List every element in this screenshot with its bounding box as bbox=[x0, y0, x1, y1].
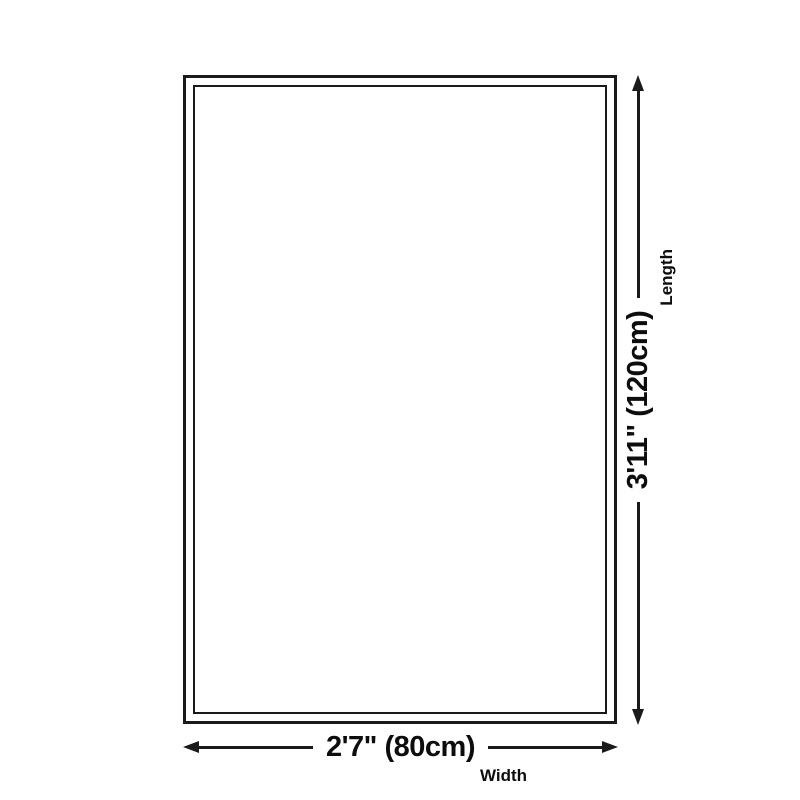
arrow-right-icon bbox=[602, 741, 618, 753]
arrow-left-icon bbox=[183, 741, 199, 753]
dimension-line bbox=[199, 746, 313, 749]
width-label: Width bbox=[480, 767, 527, 784]
rug-size-diagram: 3'11" (120cm) Length 2'7" (80cm) Width bbox=[0, 0, 800, 800]
rug-inner-border bbox=[193, 85, 607, 714]
dimension-line bbox=[488, 746, 602, 749]
dimension-line bbox=[637, 91, 640, 298]
dimension-line bbox=[637, 502, 640, 709]
width-dimension-left-segment bbox=[183, 741, 313, 753]
length-dimension-lower-segment bbox=[632, 502, 644, 725]
arrow-down-icon bbox=[632, 709, 644, 725]
length-value: 3'11" (120cm) bbox=[624, 311, 653, 490]
length-dimension-upper-segment: Length bbox=[632, 75, 644, 298]
width-dimension-right-segment: Width bbox=[488, 741, 618, 753]
width-dimension: 2'7" (80cm) Width bbox=[183, 726, 618, 768]
length-label: Length bbox=[658, 249, 675, 306]
rug-outline bbox=[183, 75, 617, 724]
length-dimension: 3'11" (120cm) Length bbox=[617, 75, 659, 725]
width-value: 2'7" (80cm) bbox=[326, 733, 475, 762]
arrow-up-icon bbox=[632, 75, 644, 91]
